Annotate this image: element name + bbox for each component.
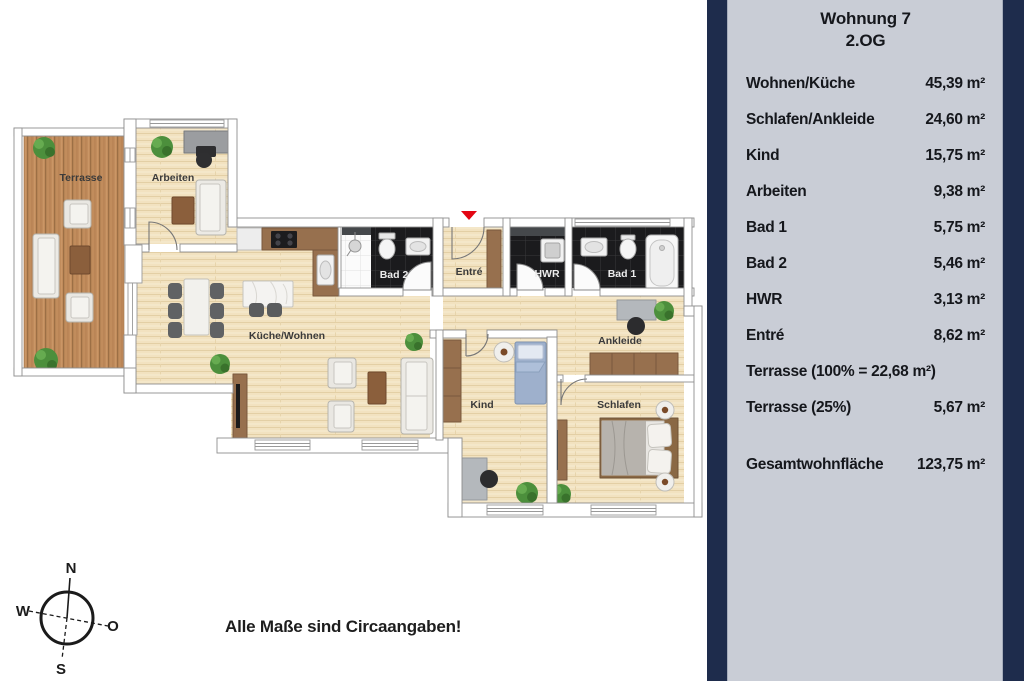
side-table-dot	[662, 407, 668, 413]
area-row-label: HWR	[746, 291, 782, 309]
dining-table	[184, 279, 209, 335]
kind-wardrobe	[443, 340, 461, 422]
bad1-label: Bad 1	[608, 268, 637, 280]
kind-chair	[480, 470, 498, 488]
burner	[275, 233, 280, 238]
entrance-marker-icon	[461, 211, 477, 220]
arbeiten-chair	[196, 152, 212, 168]
apartment-title: Wohnung 7 2.OG	[746, 8, 985, 52]
area-row: Bad 15,75 m²	[746, 210, 985, 246]
area-row-label: Bad 2	[746, 255, 787, 273]
total-area-value: 123,75 m²	[917, 456, 985, 474]
area-row-label: Arbeiten	[746, 183, 806, 201]
bad2-basin-bowl	[410, 242, 426, 252]
area-row-value: 24,60 m²	[925, 111, 985, 129]
area-row-label: Schlafen/Ankleide	[746, 111, 874, 129]
apartment-floor: 2.OG	[746, 30, 985, 52]
area-row-label: Terrasse (100% = 22,68 m²)	[746, 363, 936, 381]
total-area-label: Gesamtwohnfläche	[746, 456, 883, 474]
hwr-window-band	[510, 227, 565, 236]
total-area-row: Gesamtwohnfläche 123,75 m²	[746, 447, 985, 483]
terrasse-armchair-1-seat	[70, 204, 88, 224]
area-row: Entré8,62 m²	[746, 318, 985, 354]
pillow-1	[647, 423, 672, 448]
plant	[654, 301, 674, 321]
entre-closet	[487, 230, 501, 294]
area-row: Terrasse (100% = 22,68 m²)	[746, 354, 985, 390]
area-row-value: 3,13 m²	[934, 291, 985, 309]
plant	[151, 136, 173, 158]
ankleide-label: Ankleide	[598, 335, 642, 347]
compass-w: W	[16, 603, 31, 620]
arbeiten-label: Arbeiten	[152, 172, 195, 184]
compass-south-line	[62, 618, 67, 659]
terrasse-label: Terrasse	[59, 172, 102, 184]
terrasse-table	[70, 246, 90, 274]
area-row-value: 5,67 m²	[934, 399, 985, 417]
area-row: HWR3,13 m²	[746, 282, 985, 318]
room-area-list: Wohnen/Küche45,39 m² Schlafen/Ankleide24…	[746, 66, 985, 426]
bad1-toilet	[620, 239, 636, 259]
dining-chair	[168, 303, 182, 319]
area-row-label: Kind	[746, 147, 779, 165]
bad1-basin-bowl	[585, 242, 603, 253]
bad2-shower-floor	[341, 227, 371, 288]
schlafen-label: Schlafen	[597, 399, 641, 411]
area-row: Bad 25,46 m²	[746, 246, 985, 282]
plant	[210, 354, 230, 374]
area-summary-panel: Wohnung 7 2.OG Wohnen/Küche45,39 m² Schl…	[707, 0, 1024, 681]
living-tv	[236, 384, 240, 428]
area-row-label: Wohnen/Küche	[746, 75, 855, 93]
bathtub-drain	[660, 246, 665, 251]
dining-chair	[210, 283, 224, 299]
area-row-value: 9,38 m²	[934, 183, 985, 201]
area-row-value: 15,75 m²	[925, 147, 985, 165]
washing-machine-lid	[545, 243, 560, 258]
area-row-value: 8,62 m²	[934, 327, 985, 345]
compass: N O S W	[16, 560, 119, 678]
living-armchair-1-seat	[334, 362, 352, 384]
area-summary-card: Wohnung 7 2.OG Wohnen/Küche45,39 m² Schl…	[727, 0, 1003, 681]
kind-side-table-dot	[501, 349, 508, 356]
kueche-wohnen-label: Küche/Wohnen	[249, 330, 325, 342]
kitchen-island	[243, 281, 293, 307]
terrasse-armchair-2-seat	[71, 297, 89, 318]
kind-bed-pillow	[518, 345, 543, 359]
plant	[33, 137, 55, 159]
living-coffee-table	[368, 372, 386, 404]
compass-s: S	[56, 661, 66, 678]
terrasse-sofa-seat	[38, 238, 55, 294]
arbeiten-side-table	[172, 197, 194, 224]
area-row-value: 5,75 m²	[934, 219, 985, 237]
bad2-toilet	[379, 239, 395, 259]
area-row: Wohnen/Küche45,39 m²	[746, 66, 985, 102]
area-row-label: Terrasse (25%)	[746, 399, 851, 417]
ankleide-chair	[627, 317, 645, 335]
bad2-toilet-tank	[379, 233, 395, 239]
island-stool-2	[267, 303, 282, 317]
entre-label: Entré	[456, 266, 483, 278]
pillow-2	[647, 449, 672, 474]
disclaimer-note: Alle Maße sind Circaangaben!	[225, 617, 525, 637]
plant	[516, 482, 538, 504]
burner	[287, 240, 292, 245]
apartment-name: Wohnung 7	[746, 8, 985, 30]
area-row: Schlafen/Ankleide24,60 m²	[746, 102, 985, 138]
bad2-window-band	[342, 227, 371, 235]
sink-bowl	[320, 261, 331, 279]
bad2-label: Bad 2	[380, 269, 409, 281]
dining-chair	[210, 322, 224, 338]
area-row: Terrasse (25%)5,67 m²	[746, 390, 985, 426]
compass-north-line	[67, 578, 70, 618]
ankleide-desk	[617, 300, 656, 320]
area-row-label: Entré	[746, 327, 784, 345]
side-table-dot	[662, 479, 668, 485]
compass-o: O	[107, 618, 119, 635]
dining-chair	[168, 283, 182, 299]
terrace-door	[125, 245, 142, 283]
area-row-label: Bad 1	[746, 219, 787, 237]
island-stool-1	[249, 303, 264, 317]
kind-label: Kind	[470, 399, 493, 411]
compass-n: N	[66, 560, 77, 577]
area-row: Kind15,75 m²	[746, 138, 985, 174]
living-armchair-2-seat	[334, 405, 351, 428]
area-row-value: 45,39 m²	[925, 75, 985, 93]
dining-chair	[210, 303, 224, 319]
cooktop	[271, 231, 297, 248]
hwr-label: HWR	[534, 268, 559, 280]
kitchen-cabinet	[237, 228, 262, 250]
dining-chair	[168, 322, 182, 338]
arbeiten-sofa-seat	[200, 184, 220, 231]
plant	[405, 333, 423, 351]
burner	[287, 233, 292, 238]
burner	[275, 240, 280, 245]
area-row: Arbeiten9,38 m²	[746, 174, 985, 210]
area-row-value: 5,46 m²	[934, 255, 985, 273]
